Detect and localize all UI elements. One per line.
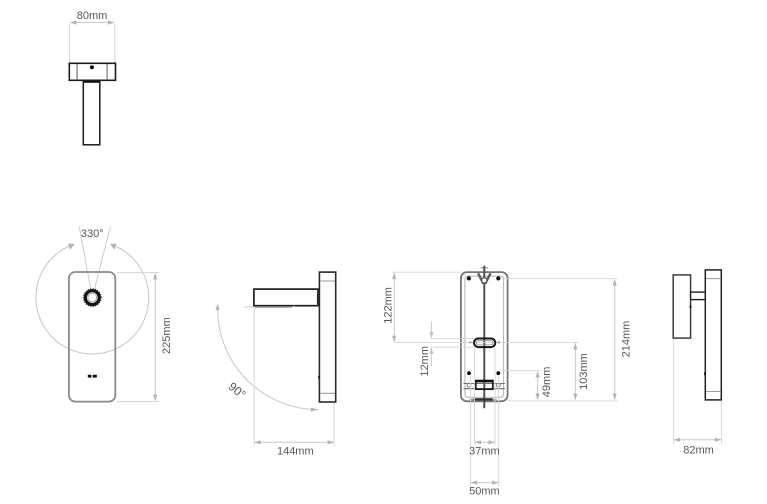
svg-text:144mm: 144mm [277,446,314,458]
svg-text:103mm: 103mm [578,353,590,390]
svg-text:225mm: 225mm [161,317,173,354]
svg-text:50mm: 50mm [469,486,500,498]
svg-text:80mm: 80mm [77,10,108,22]
svg-text:214mm: 214mm [621,321,633,358]
svg-text:90°: 90° [226,379,249,402]
svg-text:12mm: 12mm [419,346,431,377]
svg-text:122mm: 122mm [383,287,395,324]
svg-text:49mm: 49mm [541,367,553,398]
svg-text:82mm: 82mm [683,444,714,456]
svg-text:37mm: 37mm [469,445,500,457]
svg-text:330°: 330° [81,228,104,240]
